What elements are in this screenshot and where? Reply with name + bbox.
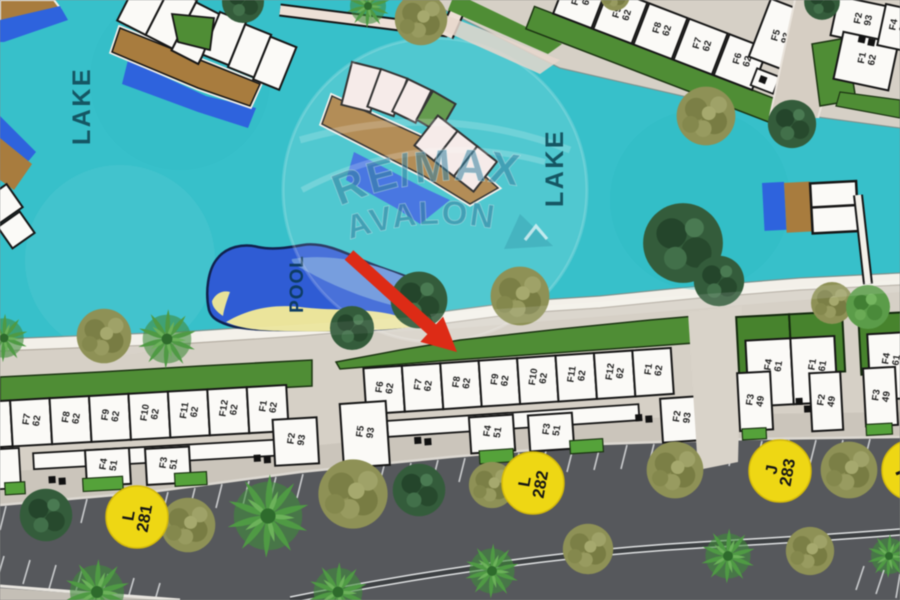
svg-text:LAKE: LAKE: [541, 129, 569, 207]
svg-text:LAKE: LAKE: [68, 67, 96, 145]
